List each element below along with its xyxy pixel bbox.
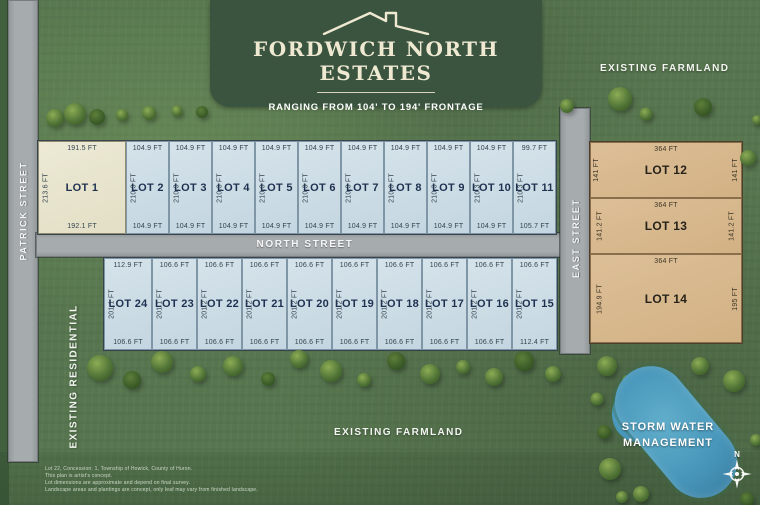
tree-icon <box>223 356 243 376</box>
lot-dim-top: 364 FT <box>654 202 677 209</box>
lot-dim-bottom: 106.6 FT <box>250 339 280 346</box>
lot-dim-top: 99.7 FT <box>522 145 548 152</box>
house-roof-icon <box>320 9 432 35</box>
tree-icon <box>560 99 574 113</box>
lot-dim-bottom: 104.9 FT <box>391 223 421 230</box>
banner-divider <box>317 92 435 93</box>
lot-dim-bottom: 106.6 FT <box>205 339 235 346</box>
lot-parcel-lot-24[interactable]: 112.9 FT201.1 FTLOT 24106.6 FT <box>104 258 152 350</box>
tree-icon <box>290 350 308 368</box>
lot-parcel-lot-3[interactable]: 104.9 FT210.3 FTLOT 3104.9 FT <box>169 141 212 234</box>
lot-parcel-lot-22[interactable]: 106.6 FT201.2 FTLOT 22106.6 FT <box>197 258 242 350</box>
lot-dim-top: 104.9 FT <box>133 145 163 152</box>
lot-dim-bottom: 104.9 FT <box>477 223 507 230</box>
lot-dim-right: 141 FT <box>732 158 739 181</box>
lot-dim-top: 106.6 FT <box>475 262 505 269</box>
east-lot-column: 364 FT141 FTLOT 12141 FT364 FT141.2 FTLO… <box>590 142 742 343</box>
lot-dim-top: 104.9 FT <box>219 145 249 152</box>
lot-dim-top: 364 FT <box>654 146 677 153</box>
tree-icon <box>123 371 141 389</box>
lot-dim-top: 364 FT <box>654 258 677 265</box>
lot-dim-side: 201.2 FT <box>426 289 433 319</box>
storm-water-line1: STORM WATER <box>608 419 728 435</box>
lot-dim-top: 104.9 FT <box>434 145 464 152</box>
tree-icon <box>616 491 628 503</box>
storm-water-line2: MANAGEMENT <box>608 435 728 451</box>
lot-dim-top: 104.9 FT <box>176 145 206 152</box>
tree-icon <box>514 351 534 371</box>
lot-dim-left: 141.2 FT <box>596 211 603 241</box>
tree-icon <box>485 368 503 386</box>
lot-parcel-lot-23[interactable]: 106.6 FT201.1 FTLOT 23106.6 FT <box>152 258 197 350</box>
lot-dim-side: 201.2 FT <box>516 289 523 319</box>
lot-dim-top: 106.6 FT <box>340 262 370 269</box>
lot-dim-side: 210.3 FT <box>388 173 395 203</box>
compass-north-label: N <box>720 450 754 459</box>
lot-dim-bottom: 106.6 FT <box>340 339 370 346</box>
lot-label: LOT 12 <box>645 163 687 177</box>
lot-dim-bottom: 104.9 FT <box>305 223 335 230</box>
lot-dim-top: 104.9 FT <box>348 145 378 152</box>
lot-label: LOT 14 <box>645 292 687 306</box>
tree-icon <box>320 360 342 382</box>
tree-icon <box>591 393 604 406</box>
south-lot-row: 112.9 FT201.1 FTLOT 24106.6 FT106.6 FT20… <box>104 258 557 350</box>
lot-dim-side: 201.2 FT <box>201 289 208 319</box>
tree-icon <box>740 150 756 166</box>
lot-parcel-lot-5[interactable]: 104.9 FT210.3 FTLOT 5104.9 FT <box>255 141 298 234</box>
tree-icon <box>116 109 128 121</box>
lot-dim-side: 201.2 FT <box>381 289 388 319</box>
lot-dim-side: 210.3 FT <box>259 173 266 203</box>
lot-dim-bottom: 104.9 FT <box>133 223 163 230</box>
lot-dim-top: 104.9 FT <box>305 145 335 152</box>
tree-icon <box>89 109 105 125</box>
lot-dim-top: 191.5 FT <box>67 145 97 152</box>
lot-parcel-lot-6[interactable]: 104.9 FT210.3 FTLOT 6104.9 FT <box>298 141 341 234</box>
tree-icon <box>87 355 113 381</box>
existing-residential-label: EXISTING RESIDENTIAL <box>69 309 80 449</box>
lot-parcel-lot-17[interactable]: 106.6 FT201.2 FTLOT 17106.6 FT <box>422 258 467 350</box>
lot-dim-left: 141 FT <box>593 158 600 181</box>
patrick-street-label: PATRICK STREET <box>19 176 29 261</box>
lot-dim-right: 195 FT <box>732 287 739 310</box>
lot-dim-bottom: 105.7 FT <box>520 223 550 230</box>
title-banner: FORDWICH NORTH ESTATES RANGING FROM 104'… <box>210 0 542 107</box>
tree-icon <box>387 352 405 370</box>
lot-dim-top: 106.6 FT <box>430 262 460 269</box>
lot-parcel-lot-14[interactable]: 364 FT194.9 FTLOT 14195 FT <box>590 254 742 343</box>
lot-dim-bottom: 104.9 FT <box>219 223 249 230</box>
footnote-line: Landscape areas and plantings are concep… <box>45 487 258 494</box>
lot-dim-bottom: 192.1 FT <box>67 223 97 230</box>
lot-dim-bottom: 112.4 FT <box>520 339 549 346</box>
storm-water-label: STORM WATER MANAGEMENT <box>608 419 728 451</box>
tree-icon <box>142 106 156 120</box>
lot-dim-side: 201.1 FT <box>156 289 163 319</box>
lot-dim-top: 106.6 FT <box>520 262 550 269</box>
lot-dim-top: 104.9 FT <box>262 145 292 152</box>
lot-parcel-lot-1[interactable]: 191.5 FT213.6 FTLOT 1192.1 FT <box>38 141 126 234</box>
lot-label: LOT 1 <box>66 182 99 194</box>
lot-parcel-lot-4[interactable]: 104.9 FT210.3 FTLOT 4104.9 FT <box>212 141 255 234</box>
tree-icon <box>64 103 86 125</box>
lot-dim-bottom: 104.9 FT <box>348 223 378 230</box>
north-street-label: NORTH STREET <box>240 239 370 250</box>
lot-label: LOT 13 <box>645 219 687 233</box>
tree-icon <box>633 486 649 502</box>
footnote-line: This plan is artist's concept. <box>45 473 258 480</box>
plan-footnotes: Lot 22, Concession: 1, Township of Howic… <box>45 466 258 494</box>
tree-icon <box>420 364 440 384</box>
lot-dim-side: 210.3 FT <box>517 173 524 203</box>
lot-dim-left: 194.9 FT <box>596 284 603 314</box>
lot-dim-right: 141.2 FT <box>729 211 736 241</box>
tree-icon <box>694 98 712 116</box>
compass-rose: N <box>720 450 754 494</box>
tree-icon <box>190 366 206 382</box>
lot-dim-bottom: 106.6 FT <box>475 339 505 346</box>
lot-parcel-lot-9[interactable]: 104.9 FT210.3 FTLOT 9104.9 FT <box>427 141 470 234</box>
existing-farmland-bottom-label: EXISTING FARMLAND <box>334 427 463 438</box>
lot-dim-side: 210.3 FT <box>130 173 137 203</box>
tree-icon <box>456 360 470 374</box>
lot-dim-bottom: 106.6 FT <box>295 339 325 346</box>
lot-parcel-lot-2[interactable]: 104.9 FT210.3 FTLOT 2104.9 FT <box>126 141 169 234</box>
lot-dim-top: 104.9 FT <box>477 145 507 152</box>
lot-dim-side: 201.1 FT <box>108 289 115 319</box>
site-plan: 191.5 FT213.6 FTLOT 1192.1 FT104.9 FT210… <box>0 0 760 505</box>
lot-dim-top: 104.9 FT <box>391 145 421 152</box>
east-street-label: EAST STREET <box>571 200 581 278</box>
lot-dim-side: 201.2 FT <box>471 289 478 319</box>
lot-parcel-lot-20[interactable]: 106.6 FT201.2 FTLOT 20106.6 FT <box>287 258 332 350</box>
tree-icon <box>608 87 632 111</box>
lot-parcel-lot-7[interactable]: 104.9 FT210.3 FTLOT 7104.9 FT <box>341 141 384 234</box>
footnote-line: Lot dimensions are approximate and depen… <box>45 480 258 487</box>
lot-dim-side: 201.2 FT <box>246 289 253 319</box>
lot-dim-side: 210.3 FT <box>474 173 481 203</box>
lot-parcel-lot-16[interactable]: 106.6 FT201.2 FTLOT 16106.6 FT <box>467 258 512 350</box>
lot-dim-top: 112.9 FT <box>113 262 142 269</box>
lot-dim-bottom: 104.9 FT <box>176 223 206 230</box>
frontage-subtitle: RANGING FROM 104' TO 194' FRONTAGE <box>210 102 542 113</box>
lot-parcel-lot-21[interactable]: 106.6 FT201.2 FTLOT 21106.6 FT <box>242 258 287 350</box>
lot-parcel-lot-12[interactable]: 364 FT141 FTLOT 12141 FT <box>590 142 742 198</box>
lot-parcel-lot-13[interactable]: 364 FT141.2 FTLOT 13141.2 FT <box>590 198 742 254</box>
lot-dim-top: 106.6 FT <box>250 262 280 269</box>
tree-icon <box>261 372 275 386</box>
lot-dim-side: 210.3 FT <box>302 173 309 203</box>
tree-icon <box>750 434 760 446</box>
tree-icon <box>545 366 561 382</box>
lot-dim-top: 106.6 FT <box>205 262 235 269</box>
tree-icon <box>196 106 208 118</box>
lot-dim-side: 213.6 FT <box>42 173 49 203</box>
development-title: FORDWICH NORTH ESTATES <box>210 37 542 85</box>
lot-dim-side: 210.3 FT <box>173 173 180 203</box>
lot-dim-bottom: 106.6 FT <box>113 339 143 346</box>
lot-parcel-lot-8[interactable]: 104.9 FT210.3 FTLOT 8104.9 FT <box>384 141 427 234</box>
tree-icon <box>723 370 745 392</box>
existing-farmland-top-label: EXISTING FARMLAND <box>600 63 729 74</box>
compass-icon <box>722 459 752 489</box>
tree-icon <box>172 106 183 117</box>
tree-icon <box>691 357 709 375</box>
footnote-line: Lot 22, Concession: 1, Township of Howic… <box>45 466 258 473</box>
lot-dim-side: 210.3 FT <box>345 173 352 203</box>
lot-dim-side: 210.3 FT <box>431 173 438 203</box>
lot-dim-side: 210.3 FT <box>216 173 223 203</box>
tree-icon <box>640 108 653 121</box>
lot-dim-bottom: 106.6 FT <box>385 339 415 346</box>
lot-dim-bottom: 104.9 FT <box>434 223 464 230</box>
lot-dim-bottom: 104.9 FT <box>262 223 292 230</box>
tree-icon <box>151 351 173 373</box>
lot-parcel-lot-19[interactable]: 106.6 FT201.2 FTLOT 19106.6 FT <box>332 258 377 350</box>
lot-parcel-lot-15[interactable]: 106.6 FT201.2 FTLOT 15112.4 FT <box>512 258 557 350</box>
lot-parcel-lot-18[interactable]: 106.6 FT201.2 FTLOT 18106.6 FT <box>377 258 422 350</box>
lot-parcel-lot-11[interactable]: 99.7 FT210.3 FTLOT 11105.7 FT <box>513 141 556 234</box>
lot-dim-bottom: 106.6 FT <box>430 339 460 346</box>
lot-dim-side: 201.2 FT <box>291 289 298 319</box>
lot-dim-side: 201.2 FT <box>336 289 343 319</box>
lot-dim-top: 106.6 FT <box>385 262 415 269</box>
tree-icon <box>357 373 371 387</box>
tree-icon <box>46 109 64 127</box>
tree-icon <box>597 356 617 376</box>
tree-icon <box>599 458 621 480</box>
tree-icon <box>752 115 760 125</box>
lot-dim-bottom: 106.6 FT <box>160 339 190 346</box>
north-lot-row: 191.5 FT213.6 FTLOT 1192.1 FT104.9 FT210… <box>38 141 556 234</box>
lot-dim-top: 106.6 FT <box>160 262 190 269</box>
lot-parcel-lot-10[interactable]: 104.9 FT210.3 FTLOT 10104.9 FT <box>470 141 513 234</box>
lot-dim-top: 106.6 FT <box>295 262 325 269</box>
